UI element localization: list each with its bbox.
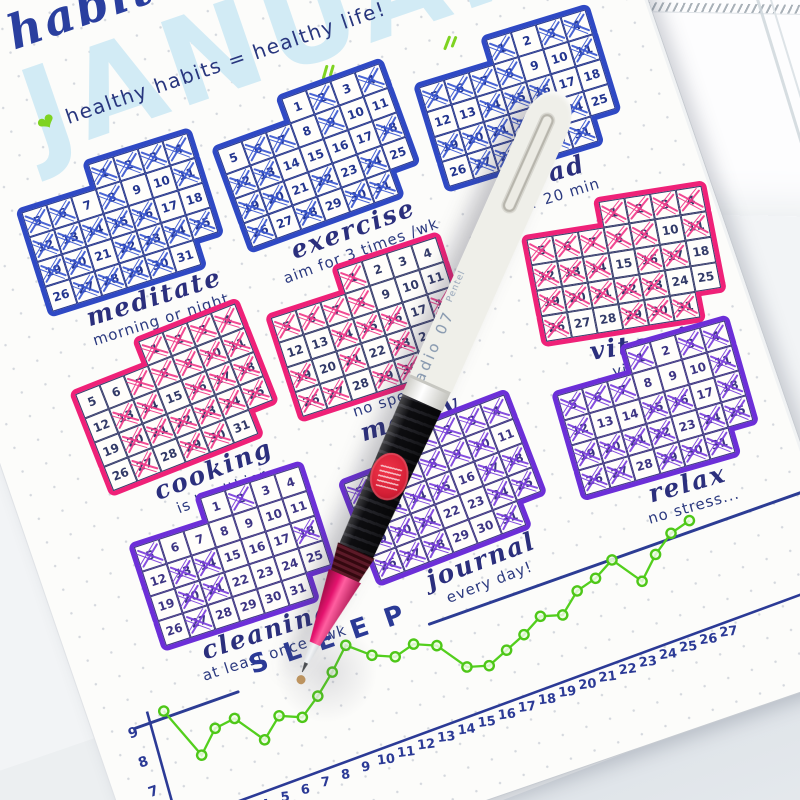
x-tick-label: 22 [618, 661, 638, 678]
data-point [259, 734, 271, 746]
data-point [501, 644, 513, 656]
x-tick-label: 8 [340, 767, 351, 783]
x-tick-label: 15 [477, 714, 497, 731]
y-tick-label: 9 [126, 724, 140, 742]
x-tick-label: 17 [517, 699, 537, 716]
data-point [590, 572, 602, 584]
habit-grid: 1234567891011121314151617181920212223242… [521, 186, 726, 342]
data-point [158, 705, 170, 717]
day-cell: 25 [691, 262, 722, 292]
data-point [684, 515, 696, 527]
x-tick-label: 7 [320, 775, 331, 791]
data-point [571, 585, 583, 597]
data-point [196, 749, 208, 761]
data-point [229, 713, 241, 725]
x-tick-label: 14 [457, 721, 477, 738]
data-point [636, 575, 648, 587]
day-cell: 31 [670, 292, 701, 322]
x-tick-label: 20 [578, 676, 598, 693]
x-tick-label: 19 [557, 684, 577, 701]
data-point [483, 660, 495, 672]
x-tick-label: 12 [416, 736, 436, 753]
x-tick-label: 26 [699, 631, 719, 648]
y-tick-label: 8 [136, 753, 150, 771]
x-tick-label: 5 [280, 790, 291, 800]
data-point [209, 722, 221, 734]
y-tick-label: 7 [146, 783, 160, 800]
x-tick-label: 25 [678, 639, 698, 656]
data-point [389, 651, 401, 663]
x-tick-label: 16 [497, 706, 517, 723]
data-point [606, 554, 618, 566]
data-point [431, 640, 443, 652]
x-tick-label: 24 [658, 646, 678, 663]
data-point [650, 549, 662, 561]
x-tick-label: 27 [719, 624, 739, 641]
data-point [535, 610, 547, 622]
data-point [461, 661, 473, 673]
data-point [665, 527, 677, 539]
x-tick-label: 13 [437, 729, 457, 746]
photo-stage: JANUARY habit tracker ❤ healthy habits =… [0, 0, 800, 800]
x-tick-label: 11 [396, 744, 416, 761]
x-tick-label: 10 [376, 751, 396, 768]
data-point [557, 609, 569, 621]
x-tick-label: 6 [300, 782, 311, 798]
x-tick-label: 18 [537, 691, 557, 708]
x-tick-label: 21 [598, 669, 618, 686]
data-point [408, 638, 420, 650]
data-point [518, 629, 530, 641]
x-tick-label: 9 [360, 760, 371, 776]
x-tick-label: 23 [638, 654, 658, 671]
